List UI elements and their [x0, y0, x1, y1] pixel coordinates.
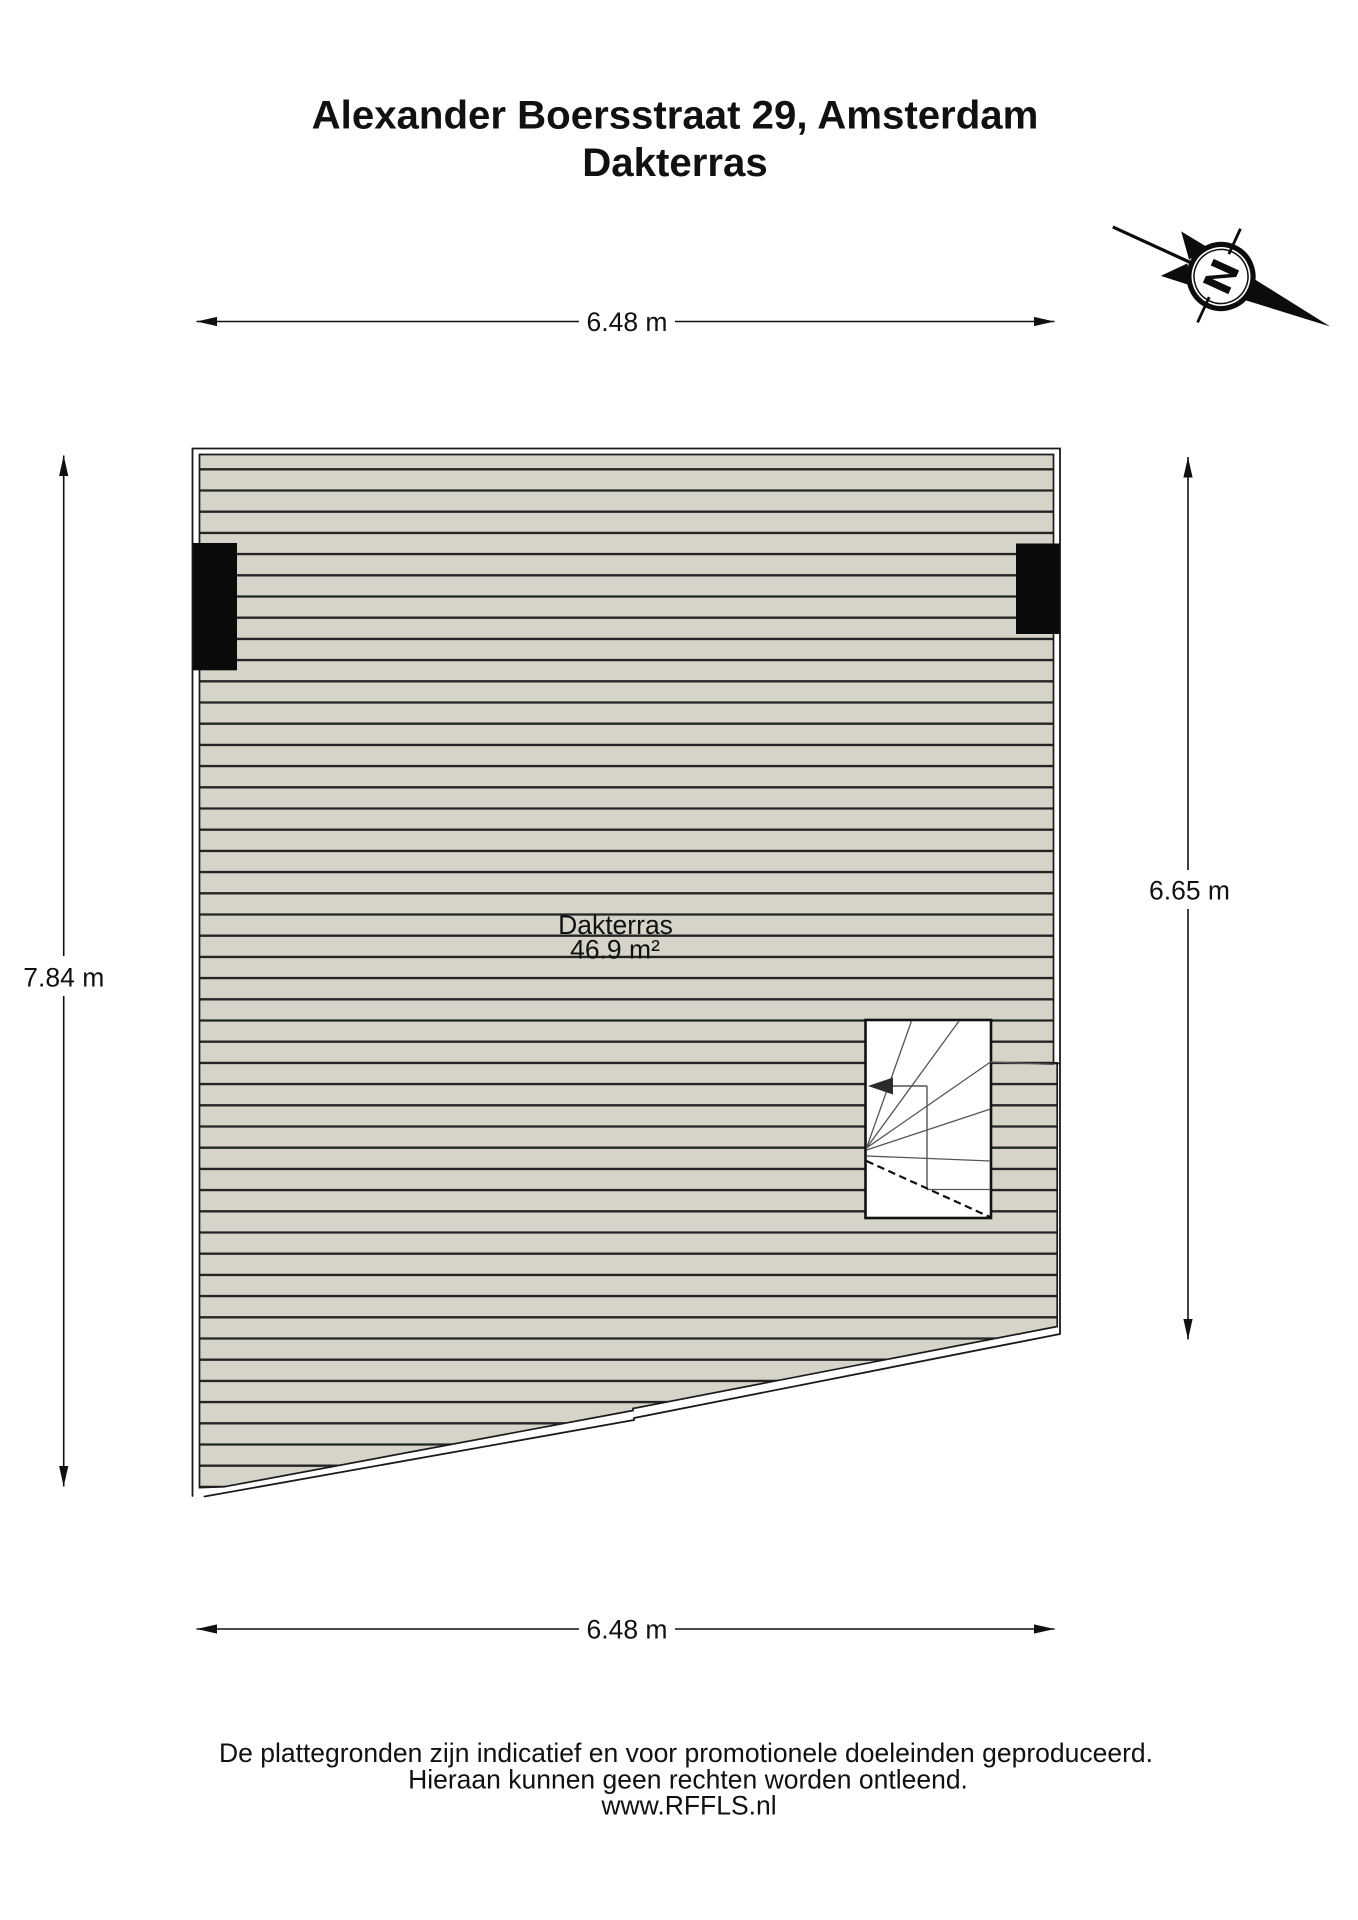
svg-text:6.65 m: 6.65 m	[1149, 876, 1230, 906]
svg-text:46.9 m²: 46.9 m²	[570, 935, 660, 965]
svg-text:www.RFFLS.nl: www.RFFLS.nl	[600, 1791, 776, 1821]
svg-text:6.48 m: 6.48 m	[586, 307, 667, 337]
svg-text:6.48 m: 6.48 m	[586, 1614, 667, 1644]
svg-text:Dakterras: Dakterras	[582, 140, 767, 185]
svg-text:Alexander Boersstraat 29, Amst: Alexander Boersstraat 29, Amsterdam	[312, 93, 1039, 138]
svg-text:7.84 m: 7.84 m	[23, 962, 104, 992]
